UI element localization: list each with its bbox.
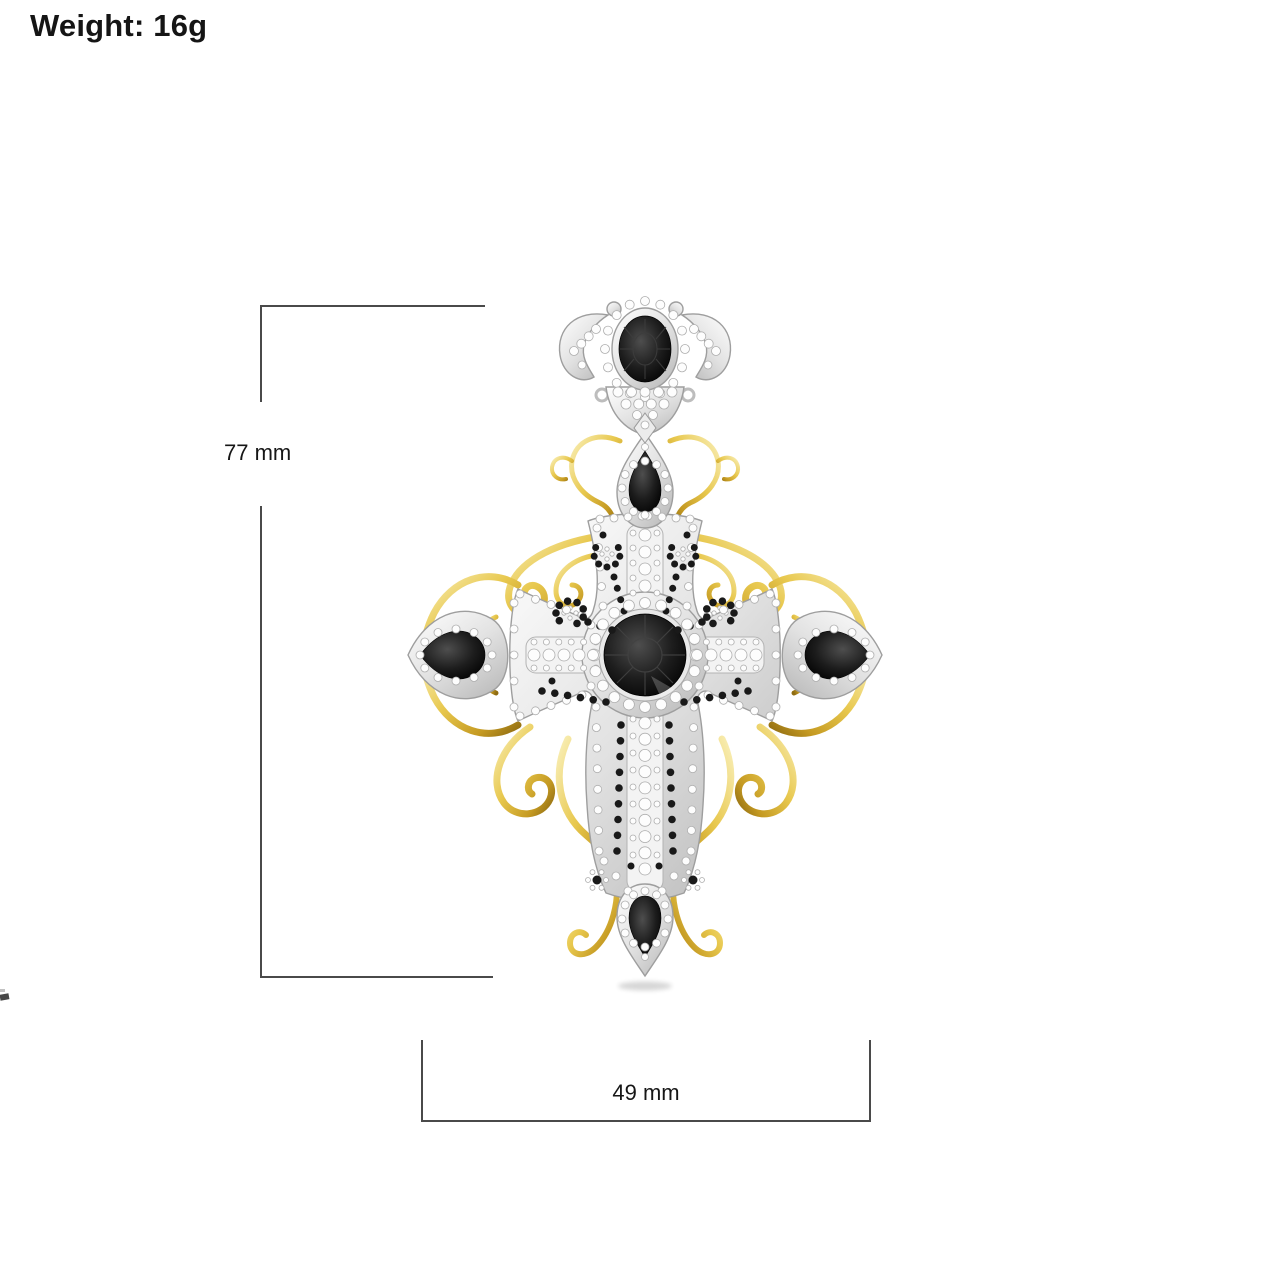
weight-label: Weight: 16g [30,8,207,44]
width-dimension-label: 49 mm [526,1080,766,1106]
edge-artifact-mark-light [0,989,5,992]
height-bracket-vertical-lower [260,506,262,977]
pendant-illustration [400,295,890,995]
width-bracket-left-line [421,1040,423,1122]
center-cluster [582,592,708,718]
pendant-illustration-wrap [400,295,890,995]
height-dimension-label: 77 mm [224,440,291,466]
pendant-shadow [618,982,672,991]
width-bracket-right-line [869,1040,871,1122]
height-bracket-vertical-upper [260,305,262,402]
edge-artifact-mark [0,993,9,1000]
product-dimension-image: Weight: 16g 77 mm 49 mm [0,0,1280,1280]
width-bracket-bottom-line [421,1120,871,1122]
